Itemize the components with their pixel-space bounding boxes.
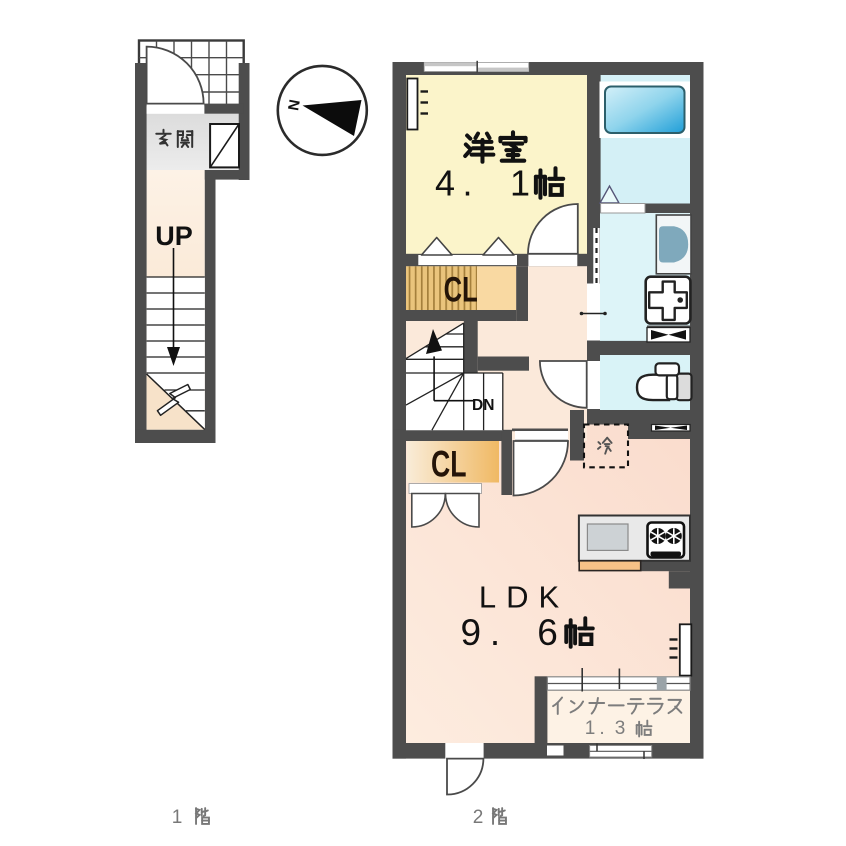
svg-text:.: . [490,612,500,653]
svg-text:CL: CL [444,269,478,309]
svg-text:9: 9 [461,612,482,653]
svg-text:DN: DN [472,397,494,414]
svg-text:1: 1 [510,163,530,204]
svg-text:3: 3 [615,718,626,739]
svg-text:1: 1 [585,718,596,739]
svg-text:LDK: LDK [479,580,569,615]
svg-text:6: 6 [537,612,558,653]
svg-text:2: 2 [473,807,484,828]
svg-text:4: 4 [435,163,455,204]
svg-text:UP: UP [155,221,193,251]
svg-text:.: . [462,163,472,204]
svg-text:CL: CL [431,443,466,484]
svg-text:.: . [599,718,604,739]
svg-text:1: 1 [172,807,183,828]
